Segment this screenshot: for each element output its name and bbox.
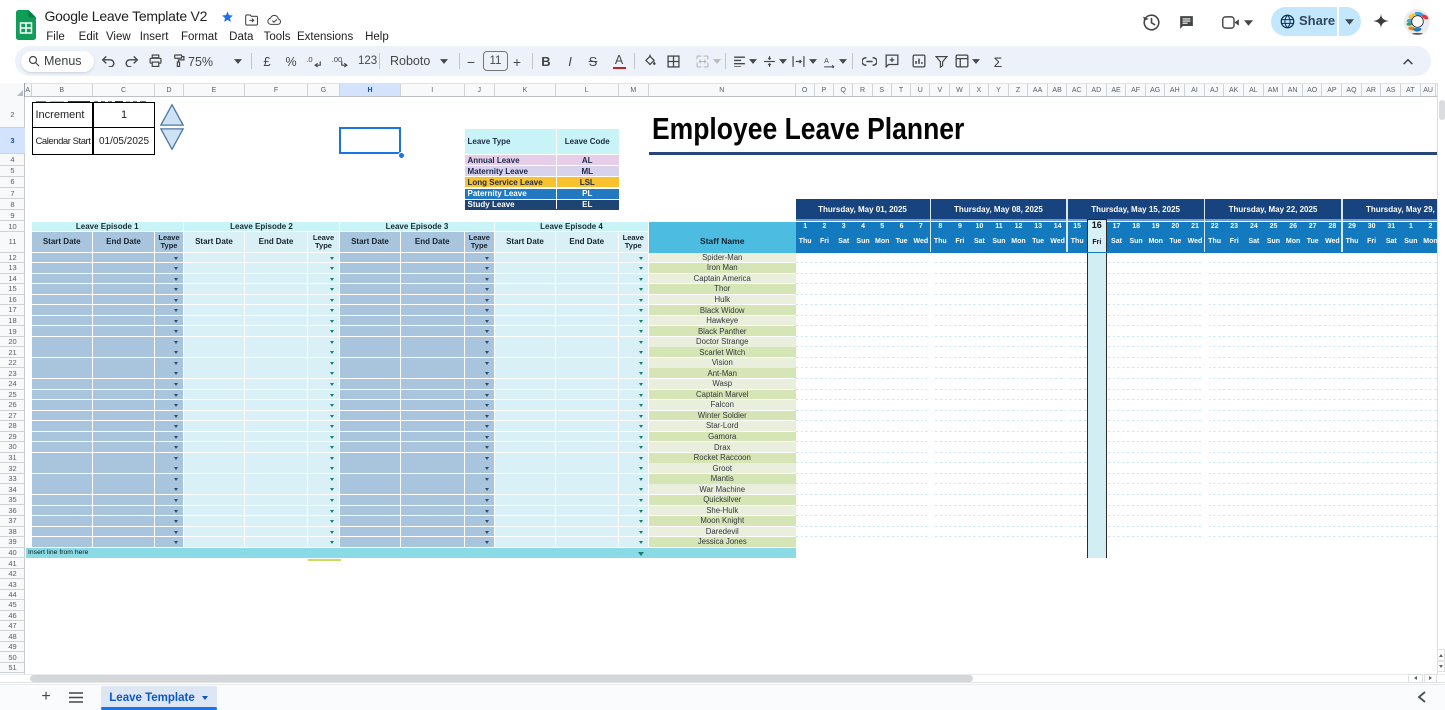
svg-text:A: A xyxy=(824,58,829,65)
svg-text:.0: .0 xyxy=(306,55,312,64)
svg-text:.00: .00 xyxy=(332,55,343,64)
